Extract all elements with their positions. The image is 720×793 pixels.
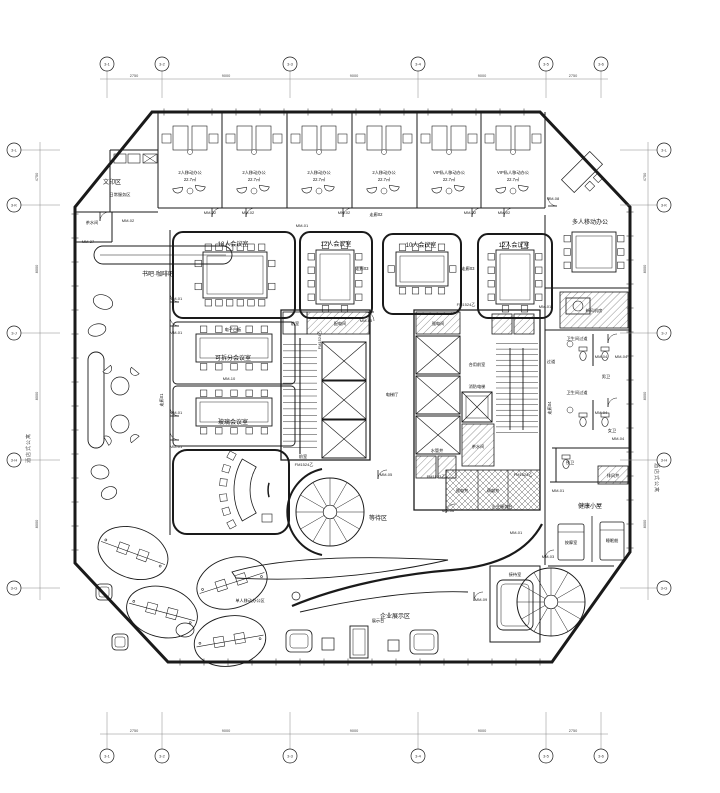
room-label: 强电井	[456, 487, 469, 494]
room-label: 茶水间	[86, 219, 99, 226]
door-swing	[608, 334, 617, 343]
room-label: 书吧·咖啡吧	[142, 270, 174, 278]
room-label: 前室	[291, 320, 299, 327]
room-label: 22.7㎡	[313, 176, 326, 182]
label-layer: 文印区日常服务区茶水间书吧·咖啡吧2人移动办公22.7㎡2人移动办公22.7㎡2…	[25, 169, 660, 624]
door-tag: MM-04	[615, 354, 628, 359]
room-label: 企业展示区	[380, 612, 410, 620]
room-label: 卫生间过道	[567, 389, 589, 396]
room-label: 22.7㎡	[378, 176, 391, 182]
door-tag: MM-02	[498, 210, 511, 215]
dimension-text: 2750	[569, 729, 577, 733]
room-label: 可拆分会议室	[215, 354, 251, 362]
grid-label: 3-J	[661, 331, 667, 336]
door-tag: MM-01	[552, 488, 565, 493]
room-label: 过道	[547, 358, 556, 365]
room-label: 电梯厅	[386, 391, 399, 398]
room-label: 前室	[299, 453, 307, 460]
room-label: 按摩室	[565, 539, 578, 546]
door-tag: MM-01	[510, 530, 523, 535]
room-label: 日常服务区	[110, 191, 131, 198]
room-label: VIP私人移动办公	[497, 169, 530, 176]
room-label: 2人移动办公	[372, 169, 396, 176]
glass-meeting-room	[173, 386, 295, 446]
work-pod	[91, 517, 176, 589]
room-label: 水管井	[431, 447, 444, 454]
door-tag: MM-02	[122, 218, 135, 223]
door-tag: FM1524乙	[457, 301, 476, 307]
room-label: 强电间	[432, 320, 445, 327]
dimension-text: 2750	[130, 74, 138, 78]
door-tag: FM1524乙	[316, 331, 322, 350]
room-label: 走廊03	[461, 265, 475, 272]
grid-label: 3-L	[661, 148, 668, 153]
room-label: 健康小屋	[578, 502, 602, 510]
room-label: 卫生间过道	[567, 335, 589, 342]
door-swing	[170, 431, 179, 440]
room-label: 合用前室	[469, 361, 486, 368]
room-label: 2人移动办公	[307, 169, 331, 176]
room-label: 电子白板	[225, 326, 243, 333]
grid-label: 3-3	[287, 754, 294, 759]
door-tag: MM-01	[296, 223, 309, 228]
room-label: 消防电梯	[469, 383, 486, 390]
room-label: 单人移动办公区	[235, 597, 264, 604]
door-tag: MM-05	[360, 318, 373, 323]
room-label: 男卫	[602, 374, 610, 380]
door-tag: MM-03	[542, 554, 555, 559]
dimension-text: 9000	[222, 74, 230, 78]
room-label: 多人移动办公	[572, 218, 608, 226]
grid-label: 3-1	[104, 754, 111, 759]
room-label: 文印区	[103, 178, 121, 186]
room-label: 展示台	[372, 617, 385, 624]
dimension-text: 9000	[350, 74, 358, 78]
grid-label: 3-6	[598, 754, 605, 759]
dimension-text: 8000	[35, 265, 39, 273]
work-pod	[190, 548, 274, 618]
dimension-text: 2750	[569, 74, 577, 78]
room-label: 2人移动办公	[178, 169, 202, 176]
door-swing	[100, 212, 109, 221]
door-tag: MM-01	[170, 330, 183, 335]
room-label: 酒店式公寓	[25, 433, 32, 463]
room-label: 12人会议室	[321, 240, 352, 248]
dimension-text: 4750	[643, 173, 647, 181]
door-tag: MM-05	[380, 472, 393, 477]
room-label: 12人会议室	[499, 241, 530, 249]
grid-label: 3-G	[11, 586, 18, 591]
door-tag: FM1524乙	[295, 461, 314, 467]
door-tag: FM1523乙	[427, 473, 446, 479]
dimension-text: 9000	[478, 74, 486, 78]
door-tag: FM1524乙	[514, 471, 533, 477]
grid-label: 3-G	[661, 586, 668, 591]
room-label: 22.7㎡	[184, 176, 197, 182]
room-label: 新风机房	[586, 307, 603, 314]
dimension-text: 9000	[222, 729, 230, 733]
grid-label: 3-2	[159, 754, 166, 759]
door-tag: MM-01	[170, 296, 183, 301]
room-label: 配电间	[334, 320, 347, 327]
dimension-text: 4750	[35, 173, 39, 181]
floor-plan: 文印区日常服务区茶水间书吧·咖啡吧2人移动办公22.7㎡2人移动办公22.7㎡2…	[0, 0, 720, 793]
grid-layer: 3-13-23-33-43-53-6275090009000900027503-…	[7, 57, 671, 763]
door-tag: MM-01	[170, 444, 183, 449]
door-tag: MM-09	[475, 597, 488, 602]
room-label: 接待室	[509, 571, 522, 578]
door-tag: MM-08	[547, 196, 560, 201]
room-label: 弱电井	[487, 487, 500, 494]
room-label: 22.7㎡	[507, 176, 520, 182]
dimension-text: 9000	[478, 729, 486, 733]
room-label: 企业服务台	[492, 503, 513, 510]
room-label: 酒店式公寓	[653, 463, 660, 493]
wall-layer	[75, 112, 630, 662]
door-tag: MM-02	[204, 210, 217, 215]
grid-label: 3-H	[11, 458, 18, 463]
dimension-text: 9000	[350, 729, 358, 733]
door-tag: MM-01	[170, 410, 183, 415]
room-label: 22.7㎡	[248, 176, 261, 182]
room-label: 18人会议室	[218, 240, 249, 248]
door-tag: MM-04	[595, 354, 608, 359]
grid-label: 3-2	[159, 62, 166, 67]
door-tag: MM-27	[82, 239, 95, 244]
grid-label: 3-K	[661, 203, 668, 208]
room-label: 走廊01	[158, 393, 165, 407]
grid-label: 3-4	[415, 754, 422, 759]
room-label: 走廊04	[546, 401, 553, 415]
grid-label: 3-K	[11, 203, 18, 208]
door-tag: MM-10	[223, 376, 236, 381]
room-label: 走廊03	[355, 265, 369, 272]
dimension-text: 8000	[643, 265, 647, 273]
room-label: 睡眠舱	[606, 537, 619, 544]
room-label: 2人移动办公	[242, 169, 266, 176]
presentation-room	[173, 450, 289, 534]
dimension-text: 8000	[35, 520, 39, 528]
door-tag: MM-04	[595, 410, 608, 415]
room-label: 残卫	[566, 459, 574, 466]
door-tag: MM-06	[442, 508, 455, 513]
grid-label: 3-5	[543, 754, 550, 759]
door-tag: MM-04	[612, 436, 625, 441]
partition-walls	[75, 112, 630, 566]
grid-label: 3-4	[415, 62, 422, 67]
grid-label: 3-L	[11, 148, 18, 153]
grid-label: 3-H	[661, 458, 668, 463]
drawing-sheet: 文印区日常服务区茶水间书吧·咖啡吧2人移动办公22.7㎡2人移动办公22.7㎡2…	[0, 0, 720, 793]
room-label: 22.7㎡	[443, 176, 456, 182]
room-label: 等待区	[369, 514, 387, 522]
room-label: 女卫	[608, 427, 616, 434]
dimension-text: 8000	[643, 520, 647, 528]
grid-label: 3-5	[543, 62, 550, 67]
grid-label: 3-3	[287, 62, 294, 67]
room-label: 玻璃会议室	[218, 418, 248, 426]
grid-label: 3-6	[598, 62, 605, 67]
grid-label: 3-1	[104, 62, 111, 67]
grid-label: 3-J	[11, 331, 17, 336]
dimension-text: 8000	[35, 392, 39, 400]
door-tag: MM-02	[338, 210, 351, 215]
door-tag: MM-01	[539, 304, 552, 309]
dimension-text: 8000	[643, 392, 647, 400]
door-tag: MM-02	[242, 210, 255, 215]
room-label: 茶水间	[472, 443, 485, 450]
room-label: VIP私人移动办公	[433, 169, 466, 176]
door-tag: MM-02	[464, 210, 477, 215]
dimension-text: 2750	[130, 729, 138, 733]
room-label: 排风井	[607, 472, 620, 479]
room-label: 10人会议室	[406, 241, 437, 249]
room-label: 走廊02	[369, 211, 383, 218]
door-swing	[608, 398, 617, 407]
